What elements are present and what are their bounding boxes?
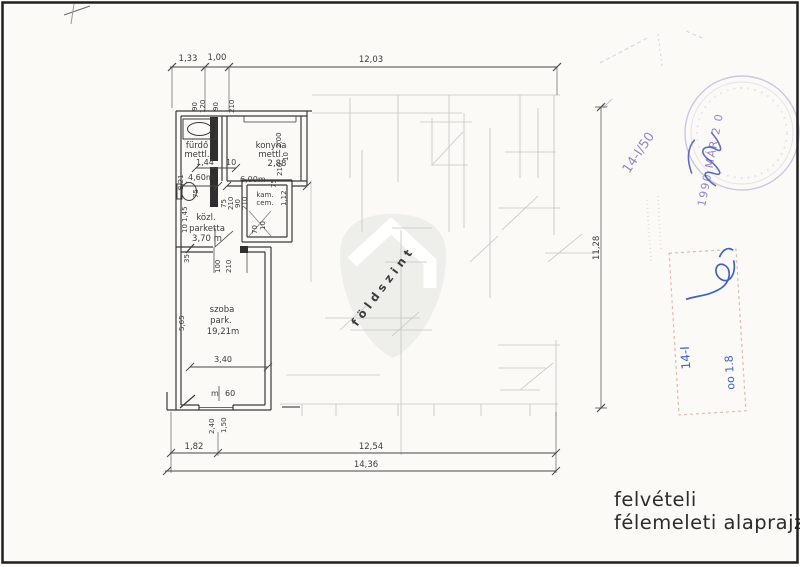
dim-top-1: 1,33 xyxy=(179,54,198,64)
scan-artifact-2 xyxy=(71,4,74,24)
dim-210door: 210 xyxy=(225,260,233,273)
stamp-date: 1990 MÁR 2 0 xyxy=(695,112,726,208)
dim-70: 70 xyxy=(251,225,259,234)
scanned-floorplan-page: 1,33 1,00 12,03 90 120 90 210 1,44 10 4,… xyxy=(0,0,800,567)
dim-120: 120 xyxy=(199,100,207,113)
dim-10c: 10 xyxy=(259,221,267,230)
title-line-2: félemeleti alaprajz xyxy=(614,511,800,534)
dim-565: 5,65 xyxy=(178,315,186,331)
room-hall-1: közl. xyxy=(196,213,215,223)
dim-321: 3,21 xyxy=(177,174,185,190)
dim-600: 6,00m xyxy=(240,175,266,184)
note-code: 14-I xyxy=(678,346,693,370)
room-szoba-2: park. xyxy=(210,316,232,326)
dim-right: 11,28 xyxy=(592,236,602,260)
dim-210a: 210 xyxy=(228,100,236,113)
note-box: 14-I oo 1.8 xyxy=(669,248,746,415)
dim-35: 35 xyxy=(183,254,191,263)
dim-460: 4,60m xyxy=(188,173,214,182)
watermark-shield xyxy=(340,214,446,358)
room-szoba-1: szoba xyxy=(210,305,235,315)
room-bath-2: mettl. xyxy=(184,150,209,160)
floorplan-drawing: 1,33 1,00 12,03 90 120 90 210 1,44 10 4,… xyxy=(0,0,800,567)
room-pantry-2: cem. xyxy=(256,199,273,207)
dim-240: 2,40 xyxy=(208,418,216,434)
dim-p210b: 210 xyxy=(241,197,249,210)
dim-100: 100 xyxy=(214,260,222,273)
dim-10b: 10 xyxy=(181,224,189,233)
dim-top-3: 12,03 xyxy=(359,55,383,65)
room-hall-2: parketta xyxy=(189,224,225,234)
stamp-ref-handwriting: 14-I/50 xyxy=(620,130,658,177)
dim-145: 1,45 xyxy=(181,206,189,222)
dim-p75b: 75 xyxy=(270,179,278,188)
room-szoba-3: 19,21m xyxy=(207,327,240,337)
dim-bottom-1: 1,82 xyxy=(185,442,204,452)
dim-p75c: 75 xyxy=(192,189,200,198)
room-hall-3: 3,70 m xyxy=(192,234,222,244)
dim-top-2: 1,00 xyxy=(208,53,227,63)
dim-90a: 90 xyxy=(191,102,199,111)
note-number: oo 1.8 xyxy=(722,355,737,390)
room-pantry-1: kam. xyxy=(256,191,273,199)
dim-10a: 10 xyxy=(226,158,236,167)
dim-340: 3,40 xyxy=(214,355,232,364)
room-kitchen-3: 2,88 xyxy=(268,159,287,169)
dim-90b: 90 xyxy=(212,102,220,111)
dim-m: m xyxy=(211,389,219,398)
dim-150: 1,50 xyxy=(220,417,228,433)
title-block: felvételi félemeleti alaprajz xyxy=(614,488,800,534)
scan-artifact xyxy=(64,6,90,15)
stamp: 1990 MÁR 2 0 14-I/50 xyxy=(620,76,799,208)
dim-bottom-3: 14,36 xyxy=(354,460,378,470)
note-scribble xyxy=(683,248,736,299)
dim-112: 1,12 xyxy=(280,190,288,206)
dim-60: 60 xyxy=(225,389,235,398)
dim-bottom-2: 12,54 xyxy=(359,442,383,452)
title-line-1: felvételi xyxy=(614,488,697,511)
